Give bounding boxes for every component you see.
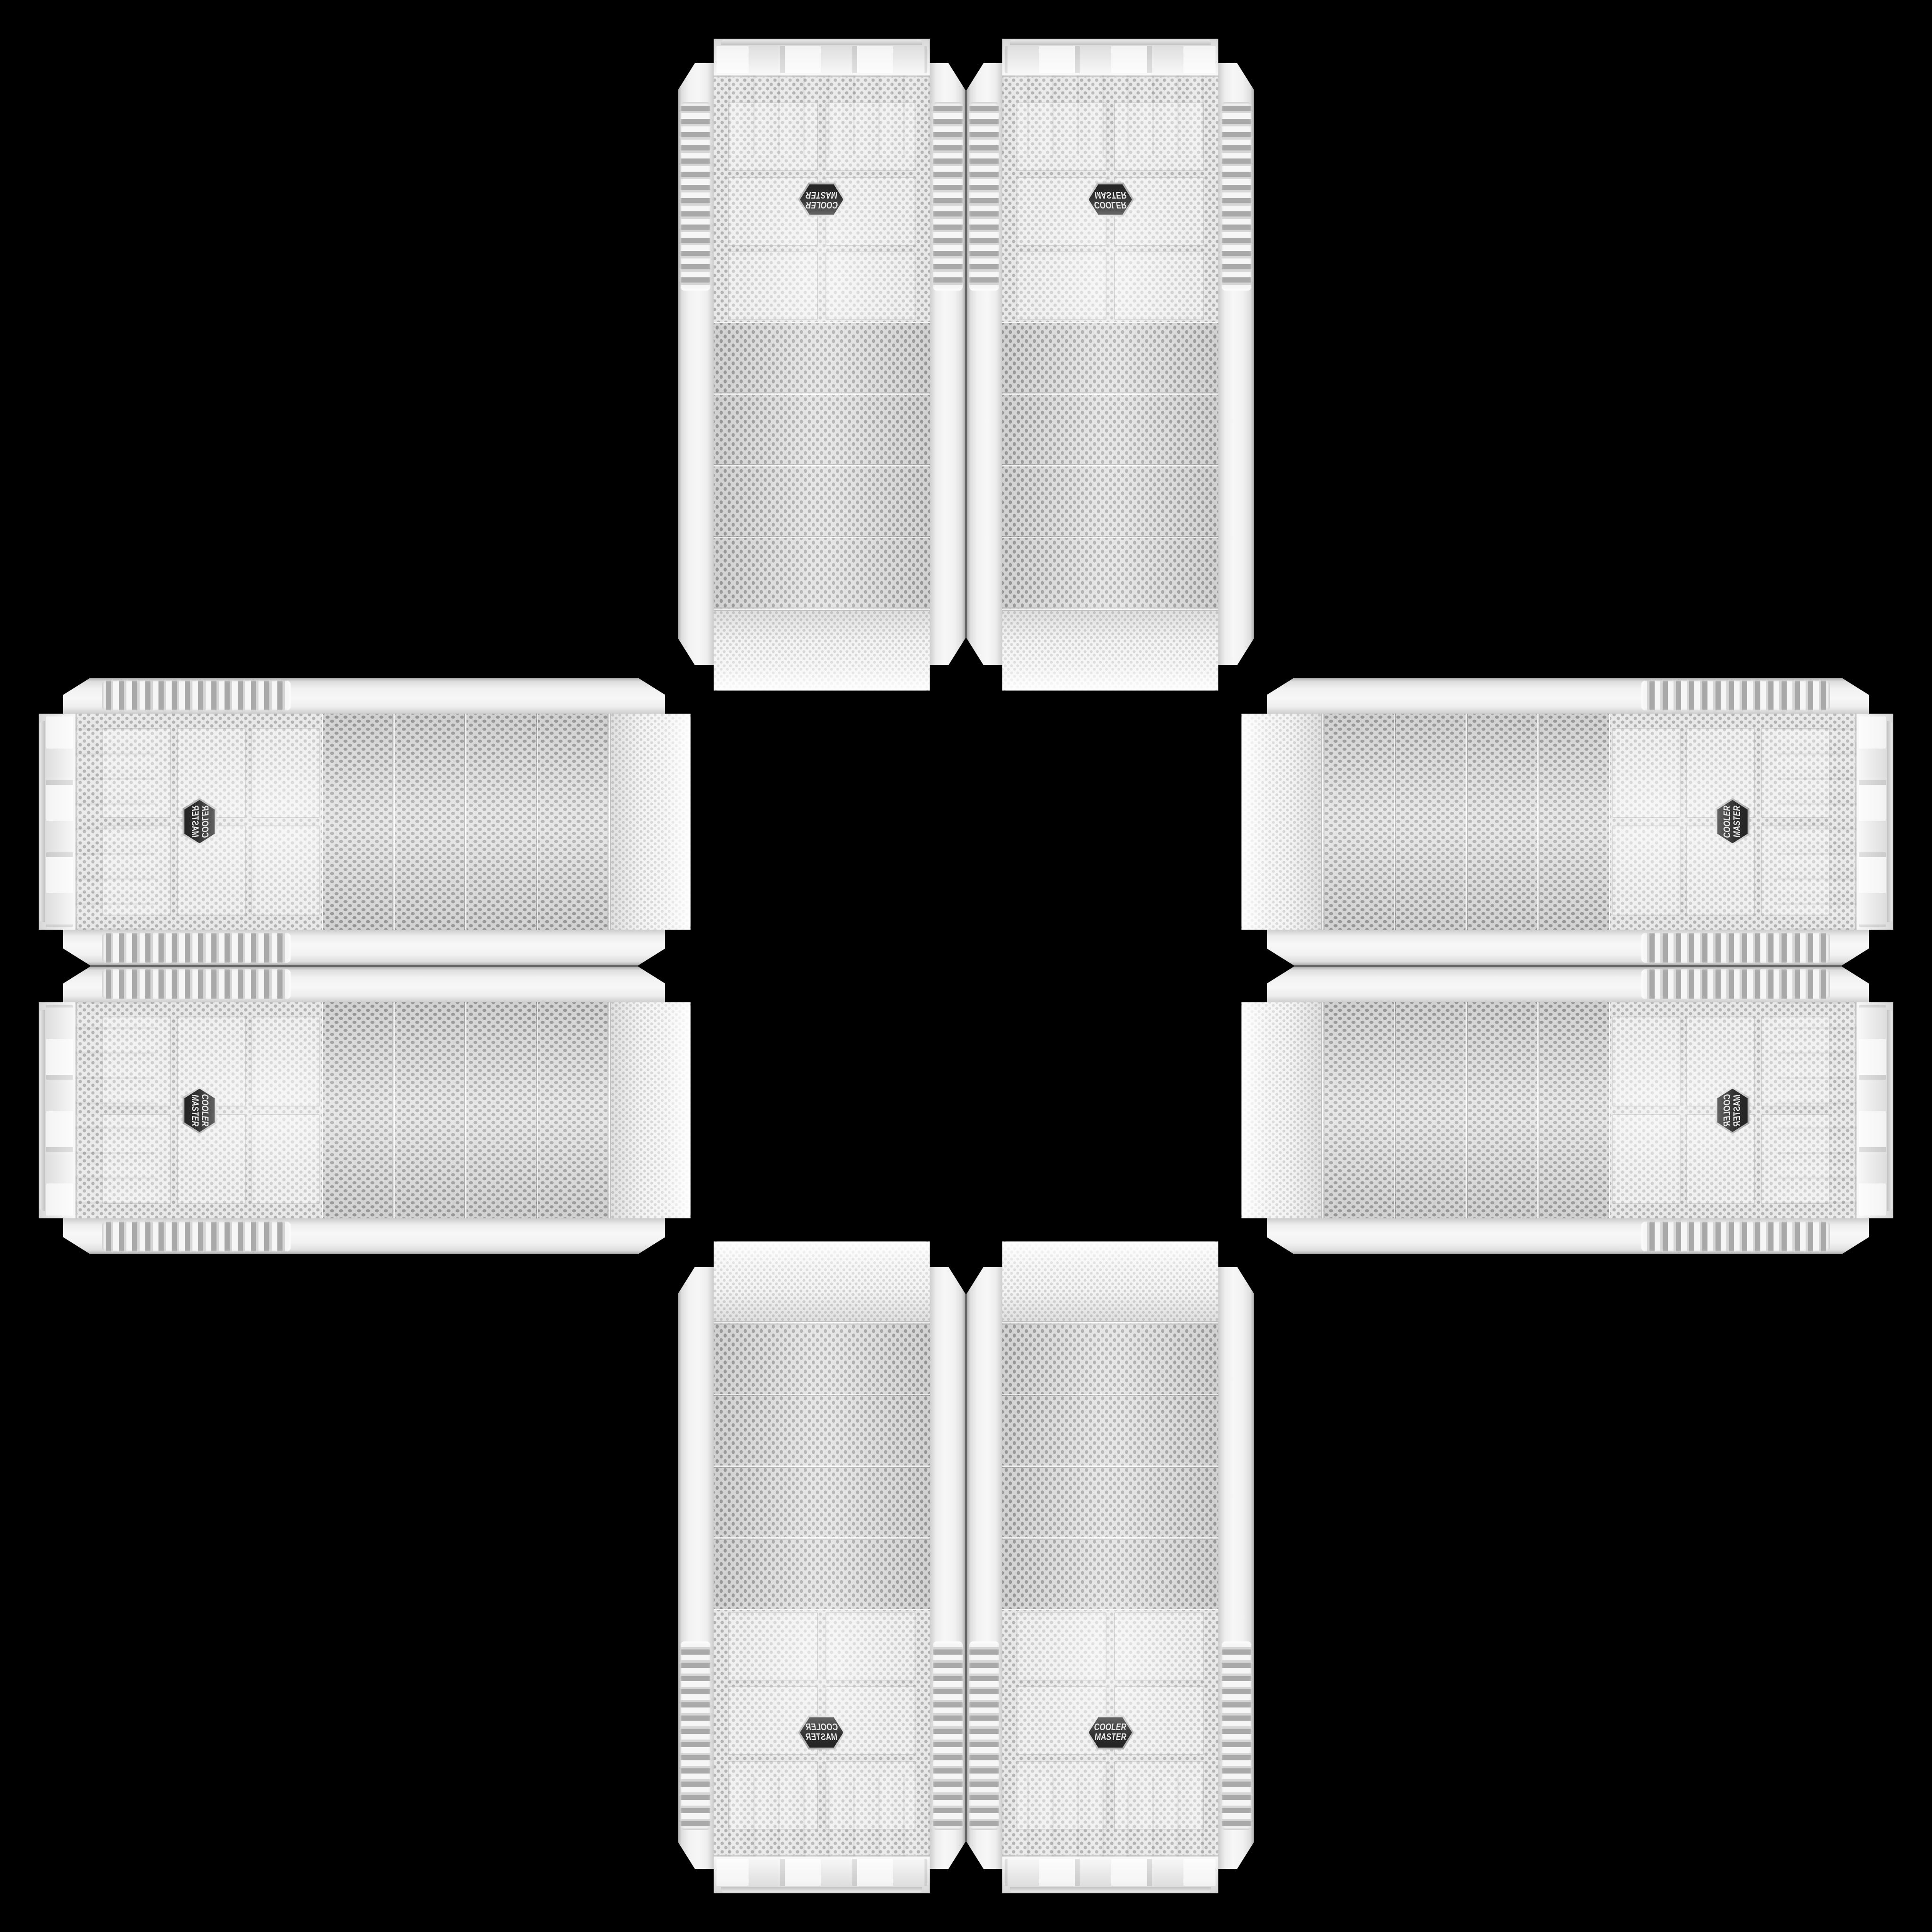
bottom-bezel (1002, 1855, 1218, 1893)
rail-grip-ribs (102, 933, 291, 962)
drive-bay-covers (714, 323, 930, 610)
side-rail-right (63, 678, 665, 716)
drive-bay-covers (323, 1002, 610, 1218)
interior-panel (1114, 177, 1204, 246)
cooler-master-logo-icon: COOLER MASTER (1089, 1717, 1132, 1748)
side-rail-right (1216, 1267, 1254, 1869)
rail-grip-ribs (969, 1641, 999, 1830)
side-rail-left (928, 63, 966, 665)
mesh-vent-stripes (1776, 714, 1857, 930)
interior-panel (177, 1016, 246, 1107)
case-right-bottom: COOLER MASTER (1240, 966, 1895, 1254)
side-rail-right (1216, 63, 1254, 665)
case-left-bottom: COOLER MASTER (37, 966, 692, 1254)
logo-text-line1: COOLER (1723, 1094, 1732, 1126)
side-rail-right (1267, 1216, 1869, 1254)
interior-panel (251, 1016, 320, 1107)
cooler-master-logo-icon: COOLER MASTER (184, 800, 215, 843)
rail-grip-ribs (1641, 681, 1830, 710)
front-mesh-panel: COOLER MASTER (1609, 1002, 1857, 1218)
interior-panel (1686, 825, 1755, 916)
drive-bay-covers (714, 1322, 930, 1609)
logo-text-line1: COOLER (1094, 200, 1126, 209)
rail-grip-ribs (102, 969, 291, 999)
bottom-bezel (714, 1855, 930, 1893)
interior-panel (251, 1114, 320, 1204)
drive-bay-covers (1002, 323, 1218, 610)
drive-bay-covers (1002, 1322, 1218, 1609)
interior-panel (1686, 1016, 1755, 1107)
logo-text-line2: MASTER (1094, 1732, 1126, 1742)
front-mesh-panel: COOLER MASTER (714, 75, 930, 323)
cooler-master-logo-icon: COOLER MASTER (1717, 1089, 1748, 1132)
front-panel: COOLER MASTER (714, 39, 930, 691)
case-top-left: COOLER MASTER (678, 37, 966, 692)
logo-text-line2: MASTER (190, 1094, 200, 1126)
top-cap-mesh (610, 1002, 691, 1218)
rail-grip-ribs (102, 681, 291, 710)
interior-panel (1612, 825, 1681, 916)
interior-panel (1612, 728, 1681, 818)
stage: COOLER MASTER (0, 0, 1932, 1932)
bottom-bezel (39, 714, 77, 930)
interior-panel (825, 251, 916, 320)
logo-text-line2: MASTER (806, 1732, 838, 1742)
rail-grip-ribs (1641, 969, 1830, 999)
side-rail-right (63, 1216, 665, 1254)
interior-panel (825, 1612, 916, 1681)
side-rail-right (678, 1267, 716, 1869)
logo-text-line1: COOLER (1094, 1723, 1126, 1732)
cooler-master-logo-icon: COOLER MASTER (1717, 800, 1748, 843)
interior-panel (825, 177, 916, 246)
bottom-bezel (1855, 1002, 1893, 1218)
mesh-vent-stripes (1776, 1002, 1857, 1218)
front-panel: COOLER MASTER (1241, 714, 1893, 930)
side-rail-left (1267, 928, 1869, 966)
logo-text-line2: MASTER (1732, 806, 1742, 838)
interior-panel (1114, 1686, 1204, 1755)
interior-panel (177, 825, 246, 916)
mesh-vent-stripes (1002, 1776, 1218, 1857)
case-right-top: COOLER MASTER (1240, 678, 1895, 966)
rail-grip-ribs (933, 102, 962, 291)
rail-grip-ribs (1222, 1641, 1251, 1830)
side-rail-left (966, 63, 1004, 665)
logo-text-line2: MASTER (1732, 1094, 1742, 1126)
logo-text-line1: COOLER (1723, 806, 1732, 838)
front-mesh-panel: COOLER MASTER (714, 1609, 930, 1857)
cooler-master-logo-icon: COOLER MASTER (184, 1089, 215, 1132)
top-cap-mesh (610, 714, 691, 930)
interior-panel (251, 728, 320, 818)
bottom-bezel (714, 39, 930, 77)
interior-panel (1016, 1612, 1107, 1681)
interior-panel (177, 728, 246, 818)
rail-grip-ribs (933, 1641, 962, 1830)
top-cap-mesh (1241, 1002, 1322, 1218)
mesh-vent-stripes (1002, 75, 1218, 156)
rail-grip-ribs (1222, 102, 1251, 291)
logo-text-line2: MASTER (806, 190, 838, 200)
front-mesh-panel: COOLER MASTER (1609, 714, 1857, 930)
interior-panel (728, 1686, 818, 1755)
top-cap-mesh (714, 1241, 930, 1322)
case-bottom-right: COOLER MASTER (966, 1240, 1254, 1895)
logo-text-line2: MASTER (190, 806, 200, 838)
interior-panel (251, 825, 320, 916)
rail-grip-ribs (1641, 1222, 1830, 1251)
interior-panel (1686, 728, 1755, 818)
interior-panel (1114, 1612, 1204, 1681)
front-mesh-panel: COOLER MASTER (75, 1002, 323, 1218)
top-cap-mesh (714, 610, 930, 691)
front-mesh-panel: COOLER MASTER (75, 714, 323, 930)
case-bottom-left: COOLER MASTER (678, 1240, 966, 1895)
mesh-vent-stripes (75, 1002, 156, 1218)
interior-panel (1016, 251, 1107, 320)
top-cap-mesh (1241, 714, 1322, 930)
front-panel: COOLER MASTER (39, 714, 691, 930)
interior-panel (1612, 1114, 1681, 1204)
bottom-bezel (1855, 714, 1893, 930)
drive-bay-covers (323, 714, 610, 930)
cooler-master-logo-icon: COOLER MASTER (800, 184, 843, 215)
interior-panel (1612, 1016, 1681, 1107)
side-rail-right (1267, 678, 1869, 716)
interior-panel (728, 1612, 818, 1681)
front-panel: COOLER MASTER (1002, 39, 1218, 691)
front-mesh-panel: COOLER MASTER (1002, 75, 1218, 323)
logo-text-line1: COOLER (200, 1094, 209, 1126)
interior-panel (1686, 1114, 1755, 1204)
drive-bay-covers (1322, 1002, 1609, 1218)
front-panel: COOLER MASTER (39, 1002, 691, 1218)
logo-text-line2: MASTER (1094, 190, 1126, 200)
case-top-right: COOLER MASTER (966, 37, 1254, 692)
side-rail-left (966, 1267, 1004, 1869)
interior-panel (825, 1686, 916, 1755)
rail-grip-ribs (969, 102, 999, 291)
side-rail-left (63, 928, 665, 966)
interior-panel (1114, 251, 1204, 320)
rail-grip-ribs (1641, 933, 1830, 962)
front-panel: COOLER MASTER (1002, 1241, 1218, 1893)
logo-text-line1: COOLER (806, 200, 838, 209)
interior-panel (728, 251, 818, 320)
case-left-top: COOLER MASTER (37, 678, 692, 966)
mesh-vent-stripes (714, 1776, 930, 1857)
interior-panel (728, 177, 818, 246)
front-panel: COOLER MASTER (714, 1241, 930, 1893)
side-rail-right (678, 63, 716, 665)
side-rail-left (1267, 966, 1869, 1004)
top-cap-mesh (1002, 610, 1218, 691)
rail-grip-ribs (102, 1222, 291, 1251)
mesh-vent-stripes (75, 714, 156, 930)
bottom-bezel (1002, 39, 1218, 77)
front-panel: COOLER MASTER (1241, 1002, 1893, 1218)
front-mesh-panel: COOLER MASTER (1002, 1609, 1218, 1857)
interior-panel (177, 1114, 246, 1204)
side-rail-left (928, 1267, 966, 1869)
drive-bay-covers (1322, 714, 1609, 930)
cooler-master-logo-icon: COOLER MASTER (800, 1717, 843, 1748)
rail-grip-ribs (681, 1641, 710, 1830)
interior-panel (1016, 177, 1107, 246)
cooler-master-logo-icon: COOLER MASTER (1089, 184, 1132, 215)
rail-grip-ribs (681, 102, 710, 291)
top-cap-mesh (1002, 1241, 1218, 1322)
mesh-vent-stripes (714, 75, 930, 156)
interior-panel (1016, 1686, 1107, 1755)
side-rail-left (63, 966, 665, 1004)
bottom-bezel (39, 1002, 77, 1218)
logo-text-line1: COOLER (200, 806, 209, 838)
logo-text-line1: COOLER (806, 1723, 838, 1732)
